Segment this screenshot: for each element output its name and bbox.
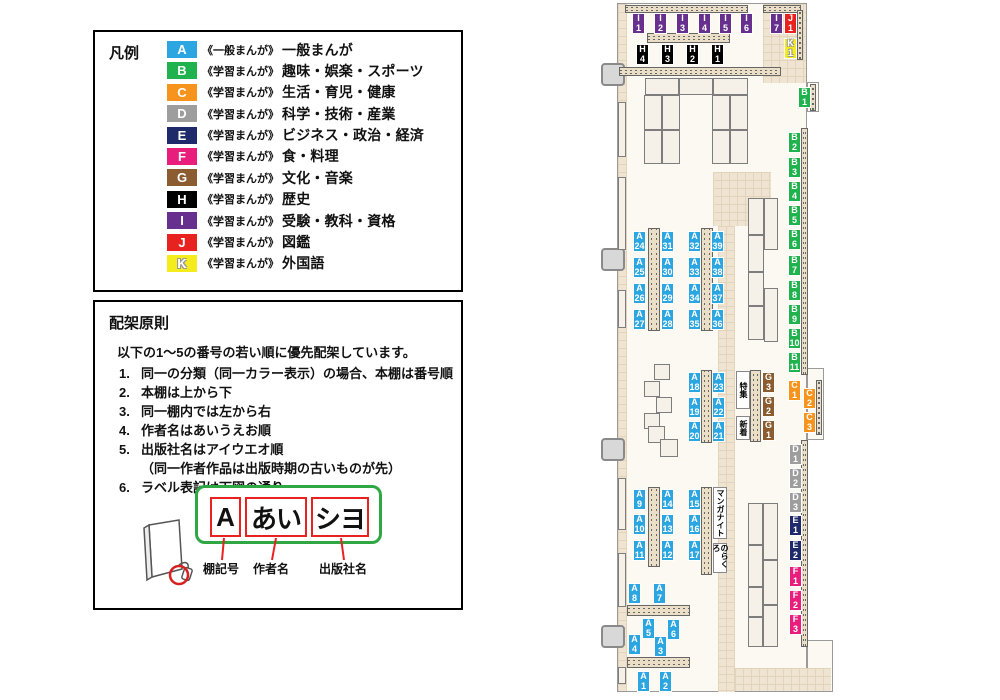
shelf-label-number: 32 xyxy=(689,242,700,252)
legend-type-label: 《学習まんが》 xyxy=(202,148,279,164)
shelf-outline xyxy=(748,306,764,340)
shelf-label: A 23 xyxy=(712,372,725,393)
shelf-label: A 37 xyxy=(711,283,724,304)
shelf-outline xyxy=(764,198,778,250)
shelf-label: A 15 xyxy=(688,489,701,510)
legend-type-label: 《学習まんが》 xyxy=(202,63,279,79)
shelf-label: G 1 xyxy=(762,420,775,441)
shelf-label-number: 2 xyxy=(789,143,800,153)
shelf-label: A 9 xyxy=(633,489,646,510)
shelf-label: F 2 xyxy=(789,590,802,611)
shelf-label-number: 2 xyxy=(790,601,801,611)
legend-color-chip: J xyxy=(167,234,197,251)
table xyxy=(654,364,670,380)
wall-shelf xyxy=(618,553,626,607)
shelf-outline xyxy=(748,272,764,306)
shelf-label: A 34 xyxy=(688,283,701,304)
shelf-label-number: 1 xyxy=(799,98,810,108)
shelf-label-number: 2 xyxy=(763,407,774,417)
shelf-label-number: 3 xyxy=(655,647,666,657)
shelf-label: A 28 xyxy=(661,309,674,330)
legend-type-label: 《学習まんが》 xyxy=(202,255,279,271)
shelf-label-number: 1 xyxy=(633,24,644,34)
shelf-label: B 10 xyxy=(788,328,801,349)
wall-shelf xyxy=(618,102,626,157)
shelf-label-number: 9 xyxy=(789,315,800,325)
shelf-label-number: 5 xyxy=(720,24,731,34)
shelf-label: H 4 xyxy=(636,44,649,65)
label-example-publisher: シヨ xyxy=(311,497,369,537)
legend-panel: 凡例 A 《一般まんが》 一般まんが B 《学習まんが》 趣味・娯楽・スポーツ … xyxy=(93,30,463,292)
shelf-label-number: 1 xyxy=(763,431,774,441)
shelf-label: D 3 xyxy=(789,492,802,513)
shelf-label-number: 39 xyxy=(712,242,723,252)
shelf-strip xyxy=(801,440,808,647)
principles-item: 5. 出版社名はアイウエオ順 （同一作者作品は出版時期の古いものが先） xyxy=(119,440,453,478)
shelf-label: C 3 xyxy=(803,412,816,433)
shelf-label: B 3 xyxy=(788,157,801,178)
legend-category-label: 一般まんが xyxy=(282,40,353,60)
shelf-strip xyxy=(619,67,781,76)
shelf-strip xyxy=(627,605,690,616)
shelf-label: C 1 xyxy=(788,380,801,401)
shelf-label-number: 14 xyxy=(662,500,673,510)
legend-color-chip: F xyxy=(167,148,197,165)
shelf-outline xyxy=(662,95,680,130)
shelf-label-number: 36 xyxy=(712,320,723,330)
shelf-label: D 1 xyxy=(789,444,802,465)
shelf-label: A 32 xyxy=(688,231,701,252)
legend-color-chip: C xyxy=(167,84,197,101)
shelf-label: H 2 xyxy=(686,44,699,65)
legend-color-chip: E xyxy=(167,127,197,144)
shelf-outline xyxy=(748,503,763,545)
shelf-outline xyxy=(763,605,778,647)
shelf-label-number: 4 xyxy=(629,645,640,655)
shelf-label-number: 35 xyxy=(689,320,700,330)
shelf-label-number: 28 xyxy=(662,320,673,330)
shelf-label-number: 1 xyxy=(638,682,649,692)
shelf-label-number: 21 xyxy=(713,432,724,442)
legend-color-chip: I xyxy=(167,212,197,229)
table xyxy=(644,381,660,397)
table xyxy=(656,397,672,413)
shelf-strip xyxy=(763,5,801,13)
shelf-outline xyxy=(713,78,748,95)
shelf-label-number: 3 xyxy=(677,24,688,34)
shelf-label-number: 24 xyxy=(634,242,645,252)
legend-row: A 《一般まんが》 一般まんが xyxy=(167,41,424,58)
legend-row: J 《学習まんが》 図鑑 xyxy=(167,234,424,251)
legend-color-chip: B xyxy=(167,62,197,79)
shelf-outline xyxy=(712,95,730,130)
shelf-label: A 25 xyxy=(633,257,646,278)
shelf-label: C 2 xyxy=(803,388,816,409)
legend-row: E 《学習まんが》 ビジネス・政治・経済 xyxy=(167,127,424,144)
shelf-label-number: 7 xyxy=(789,266,800,276)
principles-title: 配架原則 xyxy=(109,312,169,333)
shelf-outline xyxy=(763,560,778,605)
caption-author: 作者名 xyxy=(253,560,289,577)
shelf-label: A 7 xyxy=(653,583,666,604)
shelf-outline xyxy=(712,130,730,164)
shelf-label: I 2 xyxy=(654,13,667,34)
legend-type-label: 《学習まんが》 xyxy=(202,234,279,250)
shelf-label: B 2 xyxy=(788,132,801,153)
shelf-label-number: 11 xyxy=(634,551,645,561)
shelf-label-number: 29 xyxy=(662,294,673,304)
shelf-label-number: 37 xyxy=(712,294,723,304)
shelf-label: A 1 xyxy=(637,671,650,692)
shelf-label: A 6 xyxy=(667,619,680,640)
shelf-label: A 4 xyxy=(628,634,641,655)
shelf-outline xyxy=(748,545,763,587)
shelf-label-number: 1 xyxy=(790,577,801,587)
principles-item-number: 3. xyxy=(119,402,141,421)
shelf-label: G 2 xyxy=(762,396,775,417)
principles-item: 1. 同一の分類（同一カラー表示）の場合、本棚は番号順 xyxy=(119,364,453,383)
principles-panel: 配架原則 以下の1～5の番号の若い順に優先配架しています。 1. 同一の分類（同… xyxy=(93,300,463,610)
legend-category-label: 歴史 xyxy=(282,189,310,209)
shelf-label: G 3 xyxy=(762,372,775,393)
legend-color-chip: A xyxy=(167,41,197,58)
legend-type-label: 《学習まんが》 xyxy=(202,170,279,186)
shelf-label-number: 12 xyxy=(662,551,673,561)
legend-category-label: 文化・音楽 xyxy=(282,168,353,188)
shelf-label-number: 38 xyxy=(712,268,723,278)
shelf-outline xyxy=(748,235,764,272)
caption-shelf-code: 棚記号 xyxy=(203,560,239,577)
shelf-label: A 12 xyxy=(661,540,674,561)
shelf-label-number: 33 xyxy=(689,268,700,278)
shelf-outline xyxy=(763,503,778,560)
legend-category-label: ビジネス・政治・経済 xyxy=(282,125,424,145)
shelf-label: A 29 xyxy=(661,283,674,304)
shelf-outline xyxy=(645,78,679,95)
shelf-label: B 7 xyxy=(788,255,801,276)
shelf-label-number: 4 xyxy=(789,192,800,202)
shelf-label-number: 34 xyxy=(689,294,700,304)
shelf-label: A 24 xyxy=(633,231,646,252)
shelf-label-number: 1 xyxy=(785,49,796,59)
shelf-label-number: 6 xyxy=(668,630,679,640)
shelf-label-number: 2 xyxy=(804,399,815,409)
shelf-strip xyxy=(625,5,748,13)
legend-color-chip: H xyxy=(167,191,197,208)
shelf-label: B 9 xyxy=(788,304,801,325)
shelf-label: I 7 xyxy=(770,13,783,34)
legend-category-label: 外国語 xyxy=(282,253,325,273)
shelf-label: I 4 xyxy=(698,13,711,34)
shelf-label-number: 30 xyxy=(662,268,673,278)
shelf-label: A 30 xyxy=(661,257,674,278)
legend-row: F 《学習まんが》 食・料理 xyxy=(167,148,424,165)
principles-item-number: 2. xyxy=(119,383,141,402)
wall-shelf xyxy=(618,478,626,530)
shelf-label-number: 17 xyxy=(689,551,700,561)
shelf-label-number: 3 xyxy=(804,423,815,433)
shelf-label: A 20 xyxy=(688,421,701,442)
label-example-shelf-code: A xyxy=(210,497,241,537)
shelf-strip xyxy=(648,487,660,567)
principles-item: 3. 同一棚内では左から右 xyxy=(119,402,453,421)
caption-publisher: 出版社名 xyxy=(319,560,367,577)
floor-map-page: 凡例 A 《一般まんが》 一般まんが B 《学習まんが》 趣味・娯楽・スポーツ … xyxy=(0,0,1000,700)
shelf-label-number: 18 xyxy=(689,383,700,393)
map-text-box: マンガナイト xyxy=(713,487,727,539)
shelf-label-number: 1 xyxy=(785,24,796,34)
shelf-label-number: 3 xyxy=(662,55,673,65)
shelf-label-number: 25 xyxy=(634,268,645,278)
principles-item-note: （同一作者作品は出版時期の古いものが先） xyxy=(141,459,401,478)
shelf-label: K 1 xyxy=(784,38,797,59)
shelf-strip xyxy=(801,128,808,375)
shelf-label-number: 15 xyxy=(689,500,700,510)
shelf-label: D 2 xyxy=(789,468,802,489)
shelf-label: A 21 xyxy=(712,421,725,442)
legend-row: G 《学習まんが》 文化・音楽 xyxy=(167,169,424,186)
walkway-bottom xyxy=(735,668,831,691)
shelf-label: A 3 xyxy=(654,636,667,657)
shelf-outline xyxy=(644,130,662,164)
shelf-label-number: 3 xyxy=(763,383,774,393)
shelf-label-number: 2 xyxy=(687,55,698,65)
legend-title: 凡例 xyxy=(109,42,139,63)
shelf-label-number: 31 xyxy=(662,242,673,252)
shelf-label: A 22 xyxy=(712,397,725,418)
shelf-label: A 33 xyxy=(688,257,701,278)
legend-category-label: 生活・育児・健康 xyxy=(282,82,396,102)
shelf-label: I 3 xyxy=(676,13,689,34)
shelf-label: A 16 xyxy=(688,514,701,535)
shelf-outline xyxy=(679,78,713,95)
map-text-box: 特集 xyxy=(736,371,750,409)
shelf-outline xyxy=(662,130,680,164)
legend-row: D 《学習まんが》 科学・技術・産業 xyxy=(167,105,424,122)
shelf-strip xyxy=(647,33,730,43)
shelf-label-number: 20 xyxy=(689,432,700,442)
shelf-label: A 2 xyxy=(659,671,672,692)
shelf-label: B 5 xyxy=(788,205,801,226)
principles-item-text: 同一の分類（同一カラー表示）の場合、本棚は番号順 xyxy=(141,364,453,383)
shelf-outline xyxy=(730,130,748,164)
shelf-label-number: 22 xyxy=(713,408,724,418)
shelf-label: A 26 xyxy=(633,283,646,304)
shelf-label: B 11 xyxy=(788,352,801,373)
shelf-label-number: 13 xyxy=(662,525,673,535)
principles-list: 1. 同一の分類（同一カラー表示）の場合、本棚は番号順 2. 本棚は上から下 xyxy=(119,364,453,497)
shelf-label-number: 3 xyxy=(789,168,800,178)
shelf-label: H 1 xyxy=(711,44,724,65)
shelf-label: F 3 xyxy=(789,614,802,635)
shelf-label: I 6 xyxy=(740,13,753,34)
shelf-strip xyxy=(648,228,660,331)
shelf-label-number: 19 xyxy=(689,408,700,418)
principles-item-text: 同一棚内では左から右 xyxy=(141,402,271,421)
shelf-label-number: 7 xyxy=(771,24,782,34)
legend-category-label: 趣味・娯楽・スポーツ xyxy=(282,61,424,81)
shelf-label: B 1 xyxy=(798,87,811,108)
shelf-label: E 1 xyxy=(789,515,802,536)
principles-item-text: 出版社名はアイウエオ順 xyxy=(141,440,401,459)
table xyxy=(660,439,678,457)
principles-item: 2. 本棚は上から下 xyxy=(119,383,453,402)
shelf-label-number: 5 xyxy=(643,629,654,639)
principles-item-text: 作者名はあいうえお順 xyxy=(141,421,271,440)
shelf-label: I 5 xyxy=(719,13,732,34)
legend-row: C 《学習まんが》 生活・育児・健康 xyxy=(167,84,424,101)
legend-type-label: 《学習まんが》 xyxy=(202,213,279,229)
principles-item-number: 6. xyxy=(119,478,141,497)
shelf-label-number: 8 xyxy=(789,291,800,301)
shelf-strip xyxy=(701,487,712,575)
shelf-label-number: 6 xyxy=(741,24,752,34)
shelf-label-number: 2 xyxy=(790,479,801,489)
legend-row: H 《学習まんが》 歴史 xyxy=(167,191,424,208)
shelf-label-number: 2 xyxy=(660,682,671,692)
shelf-label-number: 3 xyxy=(790,503,801,513)
wall-shelf xyxy=(618,290,626,328)
legend-color-chip: D xyxy=(167,105,197,122)
shelf-label-number: 10 xyxy=(634,525,645,535)
shelf-label: B 6 xyxy=(788,229,801,250)
shelf-label: A 35 xyxy=(688,309,701,330)
legend-type-label: 《学習まんが》 xyxy=(202,127,279,143)
pillar xyxy=(601,248,625,271)
legend-row: B 《学習まんが》 趣味・娯楽・スポーツ xyxy=(167,62,424,79)
principles-item-text: 本棚は上から下 xyxy=(141,383,232,402)
shelf-label: A 38 xyxy=(711,257,724,278)
legend-color-chip: K xyxy=(167,255,197,272)
shelf-outline xyxy=(748,617,763,647)
shelf-label-number: 1 xyxy=(712,55,723,65)
legend-color-chip: G xyxy=(167,169,197,186)
shelf-label: A 31 xyxy=(661,231,674,252)
legend-category-label: 受験・教科・資格 xyxy=(282,211,396,231)
legend-type-label: 《学習まんが》 xyxy=(202,191,279,207)
principles-item-number: 4. xyxy=(119,421,141,440)
shelf-label-number: 4 xyxy=(699,24,710,34)
map-text-box: のらくろ xyxy=(713,543,727,573)
shelf-label: A 14 xyxy=(661,489,674,510)
shelf-label: A 17 xyxy=(688,540,701,561)
legend-category-label: 食・料理 xyxy=(282,146,339,166)
legend-list: A 《一般まんが》 一般まんが B 《学習まんが》 趣味・娯楽・スポーツ C 《… xyxy=(167,41,424,272)
shelf-label: B 8 xyxy=(788,280,801,301)
shelf-strip xyxy=(750,370,761,442)
shelf-label-number: 1 xyxy=(790,526,801,536)
shelf-label-number: 6 xyxy=(789,240,800,250)
shelf-label: E 2 xyxy=(789,540,802,561)
shelf-label: A 8 xyxy=(628,583,641,604)
shelf-strip xyxy=(701,370,712,443)
shelf-label-number: 16 xyxy=(689,525,700,535)
shelf-strip xyxy=(797,10,803,60)
shelf-label-number: 1 xyxy=(789,391,800,401)
legend-type-label: 《学習まんが》 xyxy=(202,106,279,122)
shelf-label: J 1 xyxy=(784,13,797,34)
map-text-box: 新着 xyxy=(736,416,750,440)
wall-shelf xyxy=(618,667,626,684)
legend-type-label: 《学習まんが》 xyxy=(202,84,279,100)
shelf-label: H 3 xyxy=(661,44,674,65)
shelf-label: A 27 xyxy=(633,309,646,330)
shelf-label-number: 8 xyxy=(629,594,640,604)
shelf-outline xyxy=(730,95,748,130)
pillar xyxy=(601,625,625,648)
pillar xyxy=(601,438,625,461)
principles-item: 4. 作者名はあいうえお順 xyxy=(119,421,453,440)
shelf-outline xyxy=(748,587,763,617)
legend-row: K 《学習まんが》 外国語 xyxy=(167,255,424,272)
shelf-label: A 10 xyxy=(633,514,646,535)
shelf-label-number: 5 xyxy=(789,216,800,226)
principles-item-number: 5. xyxy=(119,440,141,478)
shelf-label-number: 3 xyxy=(790,625,801,635)
shelf-label: B 4 xyxy=(788,181,801,202)
shelf-strip xyxy=(627,657,690,668)
shelf-label-number: 2 xyxy=(655,24,666,34)
shelf-label: A 19 xyxy=(688,397,701,418)
legend-row: I 《学習まんが》 受験・教科・資格 xyxy=(167,212,424,229)
principles-intro: 以下の1～5の番号の若い順に優先配架しています。 xyxy=(117,342,416,361)
shelf-label: A 39 xyxy=(711,231,724,252)
principles-item-number: 1. xyxy=(119,364,141,383)
shelf-label-number: 1 xyxy=(790,455,801,465)
legend-category-label: 図鑑 xyxy=(282,232,310,252)
shelf-label-number: 26 xyxy=(634,294,645,304)
shelf-label-number: 11 xyxy=(789,363,800,373)
shelf-label-number: 23 xyxy=(713,383,724,393)
shelf-label-number: 2 xyxy=(790,551,801,561)
shelf-outline xyxy=(644,95,662,130)
shelf-label: I 1 xyxy=(632,13,645,34)
shelf-label-number: 10 xyxy=(789,339,800,349)
shelf-label: F 1 xyxy=(789,566,802,587)
legend-type-label: 《一般まんが》 xyxy=(202,42,279,58)
shelf-label: A 13 xyxy=(661,514,674,535)
shelf-label-number: 27 xyxy=(634,320,645,330)
shelf-outline xyxy=(764,288,778,342)
wall-shelf xyxy=(618,177,626,250)
shelf-strip xyxy=(816,380,822,435)
shelf-label: A 36 xyxy=(711,309,724,330)
label-example-author: あい xyxy=(245,497,307,537)
legend-category-label: 科学・技術・産業 xyxy=(282,104,396,124)
shelf-label-number: 4 xyxy=(637,55,648,65)
shelf-label: A 11 xyxy=(633,540,646,561)
shelf-label: A 18 xyxy=(688,372,701,393)
shelf-label-number: 9 xyxy=(634,500,645,510)
shelf-label-number: 7 xyxy=(654,594,665,604)
shelf-outline xyxy=(748,198,764,235)
